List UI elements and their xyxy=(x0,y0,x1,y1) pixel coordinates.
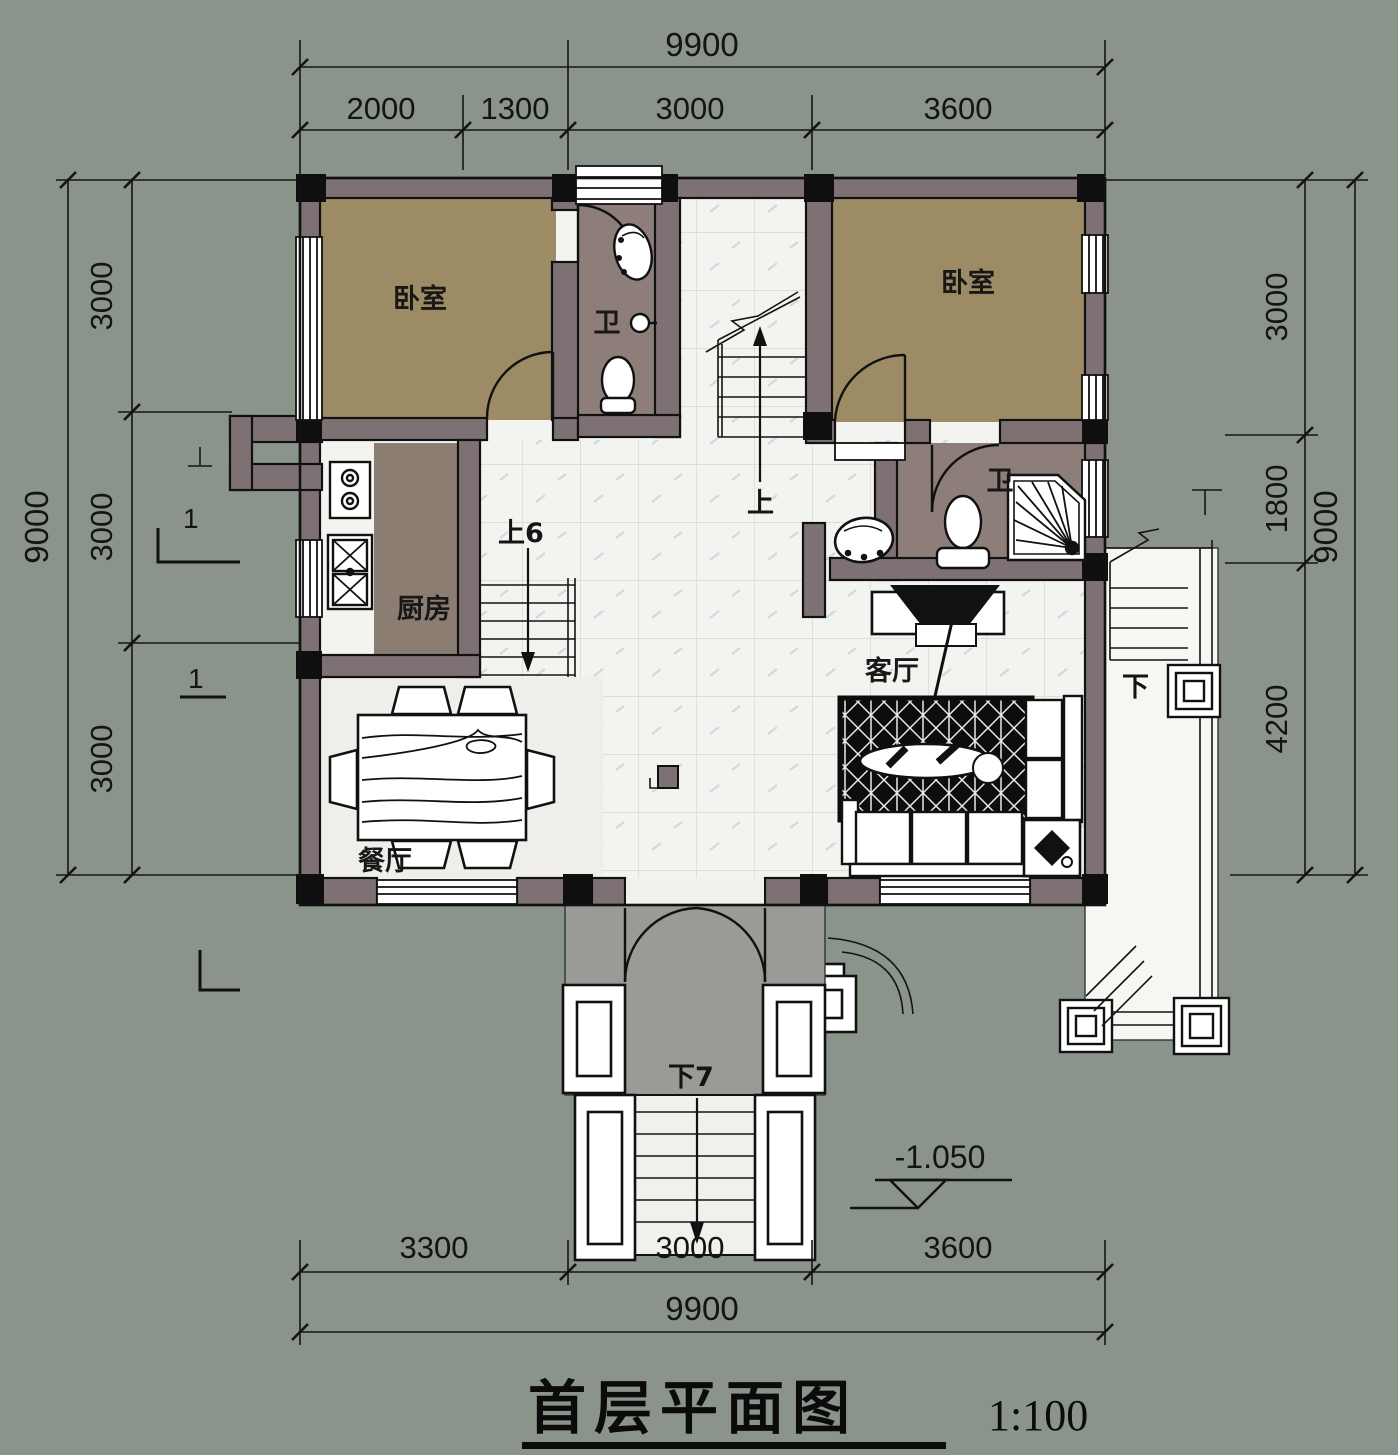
window-living xyxy=(880,880,1030,904)
drawing-scale: 1:100 xyxy=(988,1391,1088,1440)
living-set xyxy=(840,696,1082,876)
kitchen-fixtures xyxy=(328,462,372,609)
dim-top-total: 9900 xyxy=(665,26,738,63)
dim-left-total: 9000 xyxy=(18,490,55,563)
window-dining xyxy=(377,880,517,904)
dim-left-seg-1: 3000 xyxy=(84,493,119,562)
floor-plan-sheet: 下 xyxy=(0,0,1398,1455)
dim-top-seg-2: 3000 xyxy=(656,91,725,126)
dim-top-seg-3: 3600 xyxy=(924,91,993,126)
dining-set xyxy=(330,687,554,868)
coffee-table xyxy=(860,744,992,778)
dim-bottom-seg-0: 3300 xyxy=(400,1230,469,1265)
dim-bottom-seg-1: 3000 xyxy=(656,1230,725,1265)
terrace-down-label: 下 xyxy=(1122,672,1149,703)
entry-porch: 下7 xyxy=(563,905,825,1260)
entry-down7-label: 下7 xyxy=(668,1062,714,1093)
bath-right-label: 卫 xyxy=(987,466,1014,497)
bedroom-left-label: 卧室 xyxy=(393,283,447,315)
dim-right-seg-1: 1800 xyxy=(1259,465,1294,534)
bath-top-label: 卫 xyxy=(594,308,621,339)
threshold-step xyxy=(835,443,905,460)
section-number-1: 1 xyxy=(183,503,199,534)
section-number-2: 1 xyxy=(188,663,204,694)
dim-right-seg-2: 4200 xyxy=(1259,685,1294,754)
dim-top-seg-1: 1300 xyxy=(481,91,550,126)
bay-window-top xyxy=(576,166,662,204)
dim-bottom-total: 9900 xyxy=(665,1290,738,1327)
dim-bottom-seg-2: 3600 xyxy=(924,1230,993,1265)
kitchen-stair-label: 上6 xyxy=(498,518,544,549)
dining-room-label: 餐厅 xyxy=(358,846,412,877)
level-value: -1.050 xyxy=(895,1139,986,1175)
corner-shower xyxy=(1008,475,1085,560)
living-room-label: 客厅 xyxy=(865,655,919,687)
drawing-title: 首层平面图 xyxy=(528,1374,858,1442)
dim-left-seg-2: 3000 xyxy=(84,725,119,794)
title-underline xyxy=(522,1442,946,1449)
main-stair-up-label: 上 xyxy=(747,488,774,519)
bedroom-right-floor xyxy=(832,198,1085,422)
dim-left-seg-0: 3000 xyxy=(84,262,119,331)
dim-right-seg-0: 3000 xyxy=(1259,273,1294,342)
dim-right-total: 9000 xyxy=(1307,490,1344,563)
kitchen-label: 厨房 xyxy=(397,594,451,625)
kitchen-sink xyxy=(328,535,372,609)
entry-opening xyxy=(626,879,764,905)
dim-top-seg-0: 2000 xyxy=(347,91,416,126)
floor-plan-svg: 下 xyxy=(0,0,1398,1455)
bedroom-right-label: 卧室 xyxy=(941,267,995,299)
